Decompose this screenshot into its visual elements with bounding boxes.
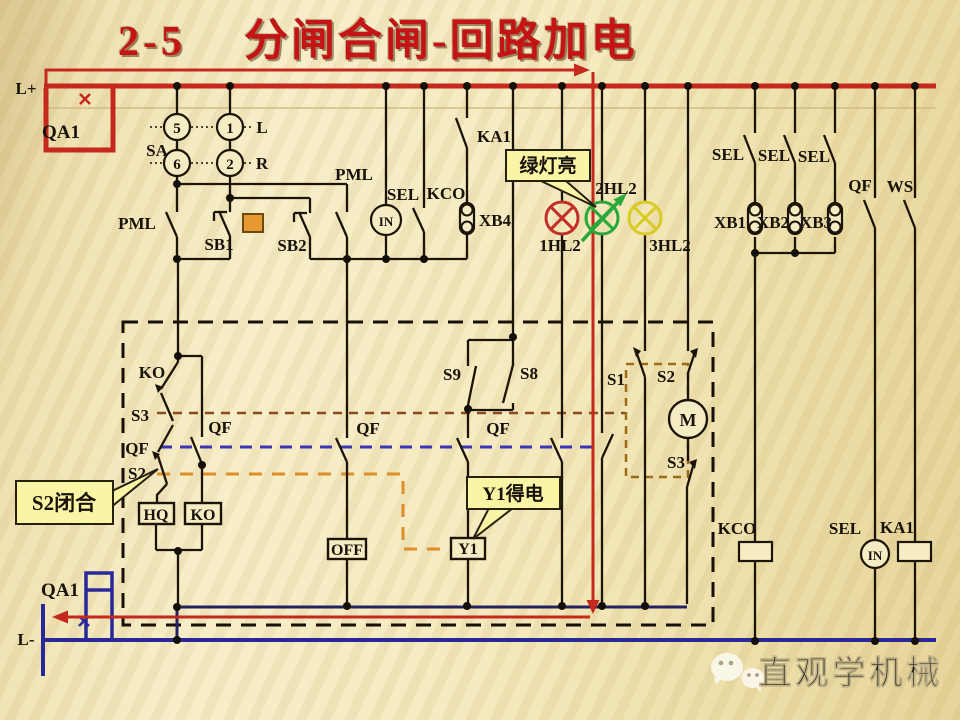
label-ka1-top: KA1 [477,127,511,146]
lamp-1hl2 [546,202,578,234]
label-pml-mid: PML [335,165,373,184]
label-sb1: SB1 [204,235,233,254]
label-kco-mid: KCO [427,184,466,203]
label-sa-r: R [256,154,269,173]
label-y1: Y1 [458,541,478,558]
labels: L+ QA1 SA 5 1 6 2 L R PML SB1 SB2 PML SE… [15,79,914,649]
contact-actuation-arrows [152,347,698,469]
callout-green-lamp: 绿灯亮 [506,150,596,207]
kco-coil [739,542,772,561]
label-s3-left: S3 [131,406,149,425]
label-xb2: XB2 [757,213,789,232]
label-s3-right: S3 [667,453,685,472]
flow-arrowheads [52,64,600,624]
label-sa: SA [146,141,168,160]
qa1-top-x-mark [80,94,90,104]
label-1hl2: 1HL2 [539,236,581,255]
watermark-brand: 直观学机械 [759,654,944,692]
label-sel-bottom: SEL [829,519,861,538]
schematic-canvas: L+ QA1 SA 5 1 6 2 L R PML SB1 SB2 PML SE… [0,0,960,720]
label-pml-left: PML [118,214,156,233]
label-sa-6: 6 [173,157,181,173]
callout-y1-energized: Y1得电 [467,477,560,539]
label-sel-r2: SEL [758,146,790,165]
label-s8: S8 [520,364,538,383]
label-hq: HQ [144,507,169,524]
label-xb3: XB3 [800,213,832,232]
wechat-icon [711,653,765,692]
callout-y1-energized-text: Y1得电 [482,482,543,505]
label-in-mid: IN [379,214,394,229]
xb2-pin-top [790,205,801,216]
button-indicator-square [243,214,263,232]
label-motor: M [680,410,697,430]
watermark: 直观学机械 [711,653,944,692]
label-sel-r3: SEL [798,147,830,166]
label-sa-1: 1 [226,121,234,137]
label-qf-top: QF [848,176,872,195]
label-qf-left: QF [125,439,149,458]
callout-s2-closed-text: S2闭合 [32,491,97,515]
label-sa-5: 5 [173,121,181,137]
label-qf-mid-left: QF [356,419,380,438]
label-ko-coil: KO [191,507,216,524]
label-qf-mid: QF [486,419,510,438]
label-qf-branch: QF [208,418,232,437]
label-xb1: XB1 [714,213,746,232]
ka1-coil [898,542,931,561]
xb2-pin-bottom [790,222,801,233]
label-sa-2: 2 [226,157,234,173]
label-l-minus: L- [18,630,35,649]
label-s1: S1 [607,370,625,389]
label-s9: S9 [443,365,461,384]
qa1-bottom-switch [86,573,112,640]
label-sb2: SB2 [277,236,306,255]
slide: 2-5 分闸合闸-回路加电 [0,0,960,720]
label-kco-coil: KCO [718,519,757,538]
label-ws: WS [887,177,913,196]
label-3hl2: 3HL2 [649,236,691,255]
label-qa1-bottom: QA1 [41,580,79,601]
label-sel-mid: SEL [387,185,419,204]
callout-green-lamp-text: 绿灯亮 [519,154,576,177]
label-in-bottom: IN [868,548,883,563]
lamp-3hl2 [629,202,661,234]
label-s2-right: S2 [657,367,675,386]
label-ko-contact: KO [139,363,165,382]
label-xb4: XB4 [479,211,512,230]
xb4-pin-top [462,205,473,216]
xb4-pin-bottom [462,222,473,233]
label-ka1-coil: KA1 [880,518,914,537]
label-sa-l: L [256,118,267,137]
label-sel-r1: SEL [712,145,744,164]
label-off: OFF [331,542,363,559]
label-qa1-top: QA1 [42,122,80,143]
label-l-plus: L+ [15,79,36,98]
label-2hl2: 2HL2 [595,179,637,198]
